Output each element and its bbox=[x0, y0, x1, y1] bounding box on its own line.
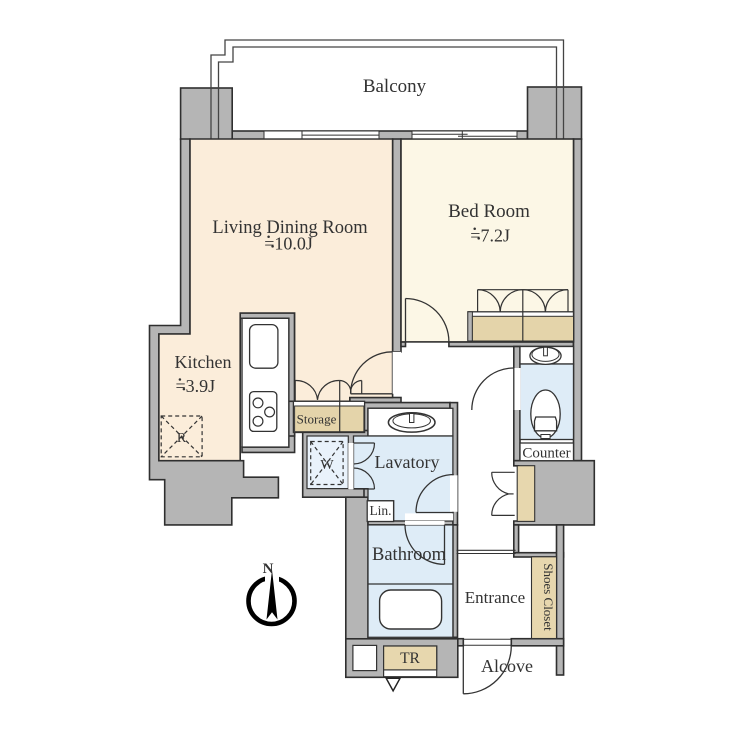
svg-text:Kitchen: Kitchen bbox=[175, 352, 232, 372]
svg-text:TR: TR bbox=[400, 650, 420, 667]
svg-text:Counter: Counter bbox=[522, 446, 570, 462]
svg-text:N: N bbox=[263, 561, 274, 577]
svg-text:=3.9J: =3.9J bbox=[176, 376, 216, 396]
svg-text:=10.0J: =10.0J bbox=[264, 233, 313, 253]
svg-text:R: R bbox=[177, 431, 187, 446]
svg-text:W: W bbox=[320, 458, 334, 473]
svg-text:Balcony: Balcony bbox=[363, 76, 427, 97]
svg-text:Lin.: Lin. bbox=[369, 503, 391, 518]
svg-text:Bathroom: Bathroom bbox=[372, 545, 447, 565]
svg-text:Lavatory: Lavatory bbox=[375, 452, 440, 472]
svg-text:=7.2J: =7.2J bbox=[470, 225, 510, 245]
svg-text:Shoes Closet: Shoes Closet bbox=[541, 563, 556, 631]
svg-text:Storage: Storage bbox=[297, 412, 337, 427]
svg-text:Bed Room: Bed Room bbox=[448, 201, 530, 222]
svg-text:Entrance: Entrance bbox=[465, 588, 525, 607]
svg-text:Alcove: Alcove bbox=[481, 656, 533, 676]
